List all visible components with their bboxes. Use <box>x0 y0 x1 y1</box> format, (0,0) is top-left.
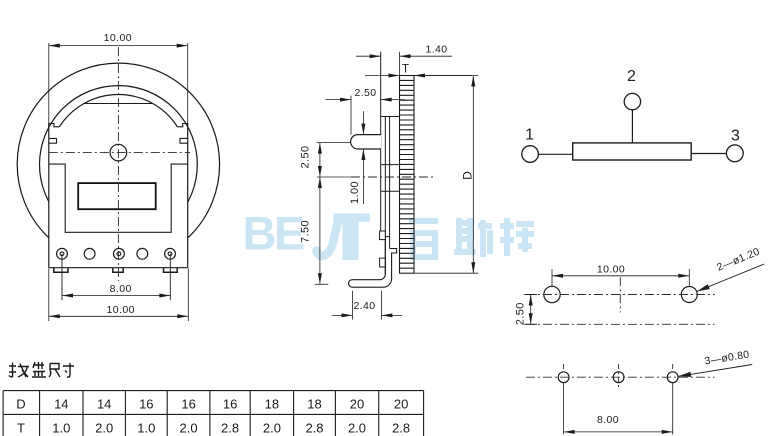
svg-text:1.40: 1.40 <box>425 44 447 56</box>
svg-text:D: D <box>16 396 25 411</box>
svg-text:20: 20 <box>394 396 408 411</box>
svg-text:3—ø0.80: 3—ø0.80 <box>704 349 751 368</box>
svg-text:T: T <box>402 64 409 76</box>
svg-text:2.0: 2.0 <box>263 420 281 435</box>
svg-text:3: 3 <box>731 128 740 145</box>
svg-text:14: 14 <box>97 396 111 411</box>
svg-text:1: 1 <box>525 127 534 144</box>
svg-text:18: 18 <box>307 396 321 411</box>
svg-text:2.50: 2.50 <box>300 145 312 168</box>
svg-text:7.50: 7.50 <box>300 220 312 243</box>
svg-text:2.8: 2.8 <box>221 420 239 435</box>
svg-text:18: 18 <box>265 396 279 411</box>
svg-text:16: 16 <box>139 396 153 411</box>
svg-text:1.0: 1.0 <box>137 420 155 435</box>
svg-text:D: D <box>461 171 475 180</box>
svg-text:2—ø1.20: 2—ø1.20 <box>715 246 761 274</box>
svg-text:2.0: 2.0 <box>95 420 113 435</box>
svg-text:14: 14 <box>54 396 68 411</box>
svg-text:2.0: 2.0 <box>180 420 198 435</box>
svg-text:8.00: 8.00 <box>110 283 132 295</box>
svg-text:16: 16 <box>223 396 237 411</box>
svg-text:T: T <box>17 420 25 435</box>
svg-text:1.00: 1.00 <box>349 181 361 204</box>
svg-text:2.0: 2.0 <box>348 420 366 435</box>
svg-text:20: 20 <box>350 396 364 411</box>
svg-text:2.8: 2.8 <box>305 420 323 435</box>
svg-text:10.00: 10.00 <box>107 304 135 316</box>
svg-text:2.50: 2.50 <box>515 302 527 325</box>
svg-text:2.40: 2.40 <box>353 300 375 312</box>
svg-text:10.00: 10.00 <box>104 32 132 44</box>
svg-text:10.00: 10.00 <box>597 263 625 275</box>
svg-text:8.00: 8.00 <box>597 414 619 426</box>
svg-text:1.0: 1.0 <box>52 420 70 435</box>
svg-text:2: 2 <box>627 68 636 85</box>
svg-text:B: B <box>243 207 277 260</box>
svg-text:16: 16 <box>181 396 195 411</box>
svg-text:2.8: 2.8 <box>392 420 410 435</box>
svg-text:2.50: 2.50 <box>354 87 376 99</box>
